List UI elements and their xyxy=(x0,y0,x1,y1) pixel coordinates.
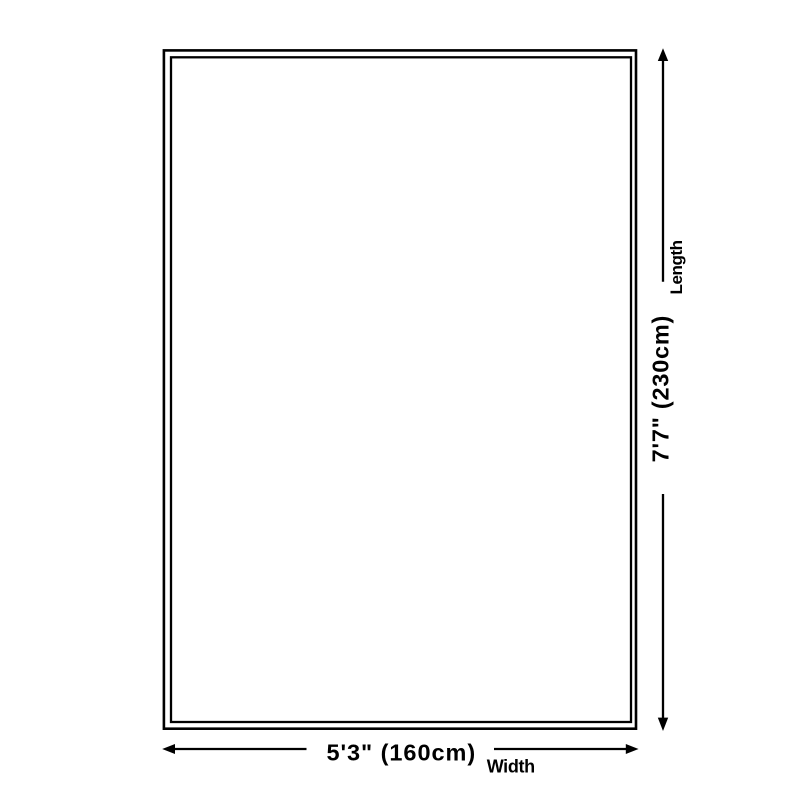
svg-text:Width: Width xyxy=(487,757,535,777)
svg-text:7'7" (230cm): 7'7" (230cm) xyxy=(648,315,674,462)
svg-text:5'3" (160cm): 5'3" (160cm) xyxy=(326,740,476,766)
svg-text:Length: Length xyxy=(667,240,686,294)
